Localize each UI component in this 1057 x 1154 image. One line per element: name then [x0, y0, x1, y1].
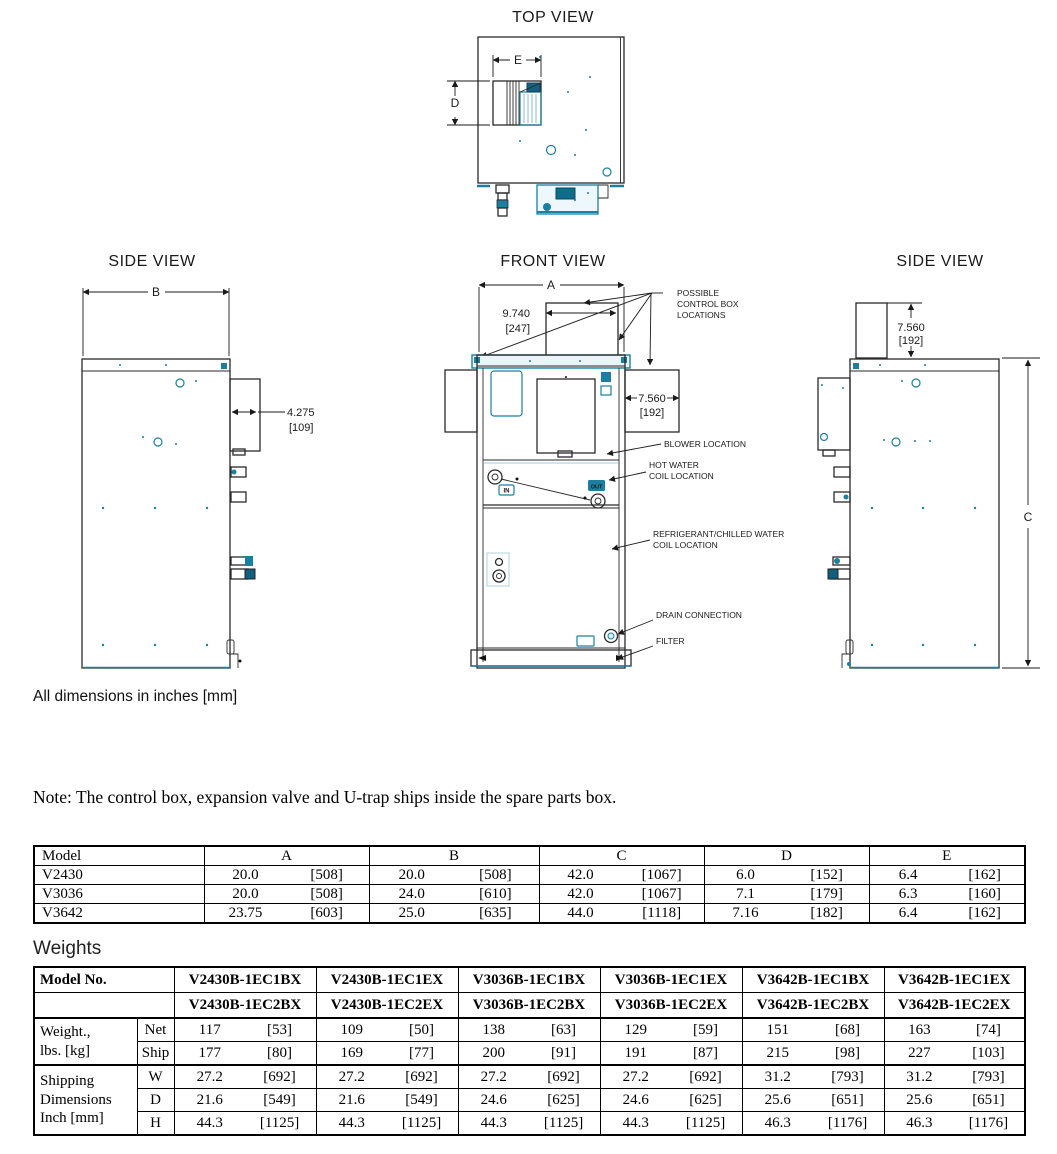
kg-value: [59]	[670, 1022, 741, 1039]
weights-row-h: H 44.3[1125] 44.3[1125] 44.3[1125] 44.3[…	[34, 1112, 1025, 1136]
kg-value: [87]	[670, 1045, 741, 1062]
top-view: TOP VIEW E	[447, 9, 624, 216]
col-header-model: Model	[34, 846, 204, 866]
dim-7560-right: 7.560 [192]	[887, 303, 925, 357]
inch-value: 6.4	[870, 867, 946, 884]
model-col-header: V2430B-1EC2BX	[174, 993, 316, 1019]
dim-cell: 31.2[793]	[742, 1065, 884, 1089]
lb-value: 163	[885, 1022, 953, 1039]
units-note: All dimensions in inches [mm]	[33, 688, 237, 706]
dim-cell: 23.75[603]	[204, 904, 369, 924]
mm-value: [1125]	[244, 1115, 315, 1132]
side-view-right-title: SIDE VIEW	[896, 253, 984, 270]
row-label: H	[137, 1112, 174, 1136]
inch-value: 27.2	[459, 1069, 528, 1086]
mm-value: [1067]	[621, 867, 703, 884]
kg-value: [103]	[954, 1045, 1024, 1062]
dim-cell: 21.6[549]	[316, 1089, 458, 1112]
lb-value: 200	[459, 1045, 528, 1062]
dim-cell: 25.6[651]	[884, 1089, 1025, 1112]
svg-text:REFRIGERANT/CHILLED WATER: REFRIGERANT/CHILLED WATER	[653, 529, 784, 539]
model-cell: V3036	[34, 885, 204, 904]
mm-value: [793]	[812, 1069, 883, 1086]
mm-value: [692]	[670, 1069, 741, 1086]
svg-text:A: A	[547, 278, 555, 292]
dim-cell: 7.16[182]	[704, 904, 869, 924]
lb-value: 215	[743, 1045, 812, 1062]
svg-text:B: B	[152, 285, 160, 299]
weight-cell: 227[103]	[884, 1042, 1025, 1066]
dim-cell: 46.3[1176]	[742, 1112, 884, 1136]
front-view: FRONT VIEW A 9.740 [247] POSSIBLE CONTRO…	[445, 253, 784, 668]
mm-value: [162]	[946, 905, 1023, 922]
mm-value: [635]	[453, 905, 538, 922]
top-view-title: TOP VIEW	[512, 9, 594, 26]
inch-value: 27.2	[601, 1069, 670, 1086]
weights-section-title: Weights	[33, 938, 101, 960]
svg-text:[192]: [192]	[640, 407, 664, 419]
weight-cell: 138[63]	[458, 1018, 600, 1042]
dim-cell: 6.4[162]	[869, 904, 1025, 924]
weight-cell: 151[68]	[742, 1018, 884, 1042]
mm-value: [1176]	[812, 1115, 883, 1132]
inch-value: 24.6	[601, 1092, 670, 1109]
dim-cell: 27.2[692]	[600, 1065, 742, 1089]
panel-dots-side-right	[871, 364, 976, 646]
inch-value: 21.6	[317, 1092, 386, 1109]
mm-value: [692]	[528, 1069, 599, 1086]
spec-sheet-page: { "views": { "top": {"title": "TOP VIEW"…	[0, 0, 1057, 1154]
lb-value: 177	[175, 1045, 244, 1062]
inch-value: 6.0	[705, 867, 785, 884]
model-no-header-blank	[34, 993, 174, 1019]
shipping-note: Note: The control box, expansion valve a…	[33, 787, 616, 808]
panel-dots-top	[519, 56, 591, 156]
engineering-drawing: .out{stroke:#2a2a2a;fill:none;stroke-wid…	[0, 0, 1057, 745]
dim-c: C	[1002, 358, 1040, 668]
svg-text:[247]: [247]	[506, 323, 530, 335]
svg-text:7.560: 7.560	[638, 393, 666, 405]
dimensions-table: Model A B C D E V2430 20.0[508] 20.0[508…	[33, 845, 1026, 924]
weight-cell: 177[80]	[174, 1042, 316, 1066]
weight-cell: 163[74]	[884, 1018, 1025, 1042]
dim-cell: 27.2[692]	[458, 1065, 600, 1089]
model-col-header: V3642B-1EC2EX	[884, 993, 1025, 1019]
model-col-header: V3642B-1EC1BX	[742, 967, 884, 993]
mm-value: [603]	[286, 905, 368, 922]
dim-cell: 20.0[508]	[204, 866, 369, 885]
row-label: Net	[137, 1018, 174, 1042]
lb-value: 191	[601, 1045, 670, 1062]
group-label-line: Dimensions	[40, 1091, 137, 1110]
inch-value: 42.0	[540, 886, 620, 903]
dim-a: A	[479, 278, 624, 352]
col-header-c: C	[539, 846, 704, 866]
model-col-header: V2430B-1EC2EX	[316, 993, 458, 1019]
svg-text:BLOWER LOCATION: BLOWER LOCATION	[664, 439, 746, 449]
kg-value: [91]	[528, 1045, 599, 1062]
model-col-header: V3036B-1EC1BX	[458, 967, 600, 993]
kg-value: [63]	[528, 1022, 599, 1039]
mm-value: [651]	[954, 1092, 1024, 1109]
model-col-header: V2430B-1EC1EX	[316, 967, 458, 993]
dim-cell: 24.0[610]	[369, 885, 539, 904]
inch-value: 44.3	[459, 1115, 528, 1132]
top-view-bottom-fittings	[477, 185, 624, 216]
model-col-header: V3036B-1EC2BX	[458, 993, 600, 1019]
side-view-right: SIDE VIEW 7.560 [192]	[818, 253, 1040, 668]
svg-text:C: C	[1024, 510, 1033, 524]
dim-row-v3036: V3036 20.0[508] 24.0[610] 42.0[1067] 7.1…	[34, 885, 1025, 904]
drain-connection	[605, 630, 618, 643]
kg-value: [74]	[954, 1022, 1024, 1039]
inch-value: 42.0	[540, 867, 620, 884]
dim-cell: 46.3[1176]	[884, 1112, 1025, 1136]
weights-row-ship: Ship 177[80] 169[77] 200[91] 191[87] 215…	[34, 1042, 1025, 1066]
col-header-d: D	[704, 846, 869, 866]
mm-value: [610]	[453, 886, 538, 903]
group-label-line: lbs. [kg]	[40, 1042, 137, 1061]
inch-value: 27.2	[175, 1069, 244, 1086]
weight-cell: 191[87]	[600, 1042, 742, 1066]
inch-value: 24.0	[370, 886, 453, 903]
dim-cell: 27.2[692]	[174, 1065, 316, 1089]
svg-text:D: D	[451, 96, 460, 110]
kg-value: [53]	[244, 1022, 315, 1039]
dim-9740: 9.740 [247]	[502, 308, 616, 335]
inch-value: 27.2	[317, 1069, 386, 1086]
model-col-header: V2430B-1EC1BX	[174, 967, 316, 993]
inch-value: 20.0	[370, 867, 453, 884]
mm-value: [508]	[286, 867, 368, 884]
svg-text:7.560: 7.560	[897, 322, 925, 334]
dim-row-v2430: V2430 20.0[508] 20.0[508] 42.0[1067] 6.0…	[34, 866, 1025, 885]
row-label: W	[137, 1065, 174, 1089]
dim-cell: 44.3[1125]	[458, 1112, 600, 1136]
pipe-stubs-left-view	[231, 467, 255, 579]
weights-header-row-2: V2430B-1EC2BX V2430B-1EC2EX V3036B-1EC2B…	[34, 993, 1025, 1019]
mm-value: [793]	[954, 1069, 1024, 1086]
inch-value: 25.6	[885, 1092, 953, 1109]
inch-value: 6.4	[870, 905, 946, 922]
dim-cell: 42.0[1067]	[539, 866, 704, 885]
inch-value: 7.1	[705, 886, 785, 903]
dim-cell: 21.6[549]	[174, 1089, 316, 1112]
weights-row-w: ShippingDimensionsInch [mm] W 27.2[692] …	[34, 1065, 1025, 1089]
kg-value: [77]	[386, 1045, 457, 1062]
dim-cell: 25.6[651]	[742, 1089, 884, 1112]
svg-text:FILTER: FILTER	[656, 636, 685, 646]
row-label: D	[137, 1089, 174, 1112]
weights-table: Model No. V2430B-1EC1BX V2430B-1EC1EX V3…	[33, 966, 1026, 1136]
dim-cell: 20.0[508]	[204, 885, 369, 904]
dim-cell: 7.1[179]	[704, 885, 869, 904]
col-header-e: E	[869, 846, 1025, 866]
dim-cell: 6.4[162]	[869, 866, 1025, 885]
mm-value: [508]	[453, 867, 538, 884]
svg-text:9.740: 9.740	[502, 308, 530, 320]
inch-value: 44.0	[540, 905, 620, 922]
panel-dots-side-left	[102, 364, 208, 646]
mm-value: [160]	[946, 886, 1023, 903]
dim-4275: 4.275 [109]	[232, 407, 315, 434]
model-col-header: V3642B-1EC1EX	[884, 967, 1025, 993]
lb-value: 227	[885, 1045, 953, 1062]
inch-value: 25.0	[370, 905, 453, 922]
inch-value: 23.75	[205, 905, 285, 922]
mm-value: [651]	[812, 1092, 883, 1109]
weight-cell: 215[98]	[742, 1042, 884, 1066]
lb-value: 169	[317, 1045, 386, 1062]
blower-assembly-top	[493, 81, 541, 125]
mm-value: [162]	[946, 867, 1023, 884]
model-no-header: Model No.	[34, 967, 174, 993]
svg-text:POSSIBLE: POSSIBLE	[677, 288, 719, 298]
model-col-header: V3642B-1EC2BX	[742, 993, 884, 1019]
weight-cell: 117[53]	[174, 1018, 316, 1042]
inch-value: 31.2	[885, 1069, 953, 1086]
model-cell: V3642	[34, 904, 204, 924]
front-callouts: BLOWER LOCATION HOT WATER COIL LOCATION …	[607, 439, 784, 659]
dim-e: E	[493, 53, 541, 77]
svg-text:LOCATIONS: LOCATIONS	[677, 310, 726, 320]
weight-group-label: Weight.,lbs. [kg]	[34, 1018, 137, 1065]
svg-text:DRAIN CONNECTION: DRAIN CONNECTION	[656, 610, 742, 620]
inch-value: 25.6	[743, 1092, 812, 1109]
dim-7560-front: 7.560 [192]	[625, 393, 679, 419]
mm-value: [1118]	[621, 905, 703, 922]
mm-value: [182]	[786, 905, 868, 922]
svg-text:CONTROL BOX: CONTROL BOX	[677, 299, 739, 309]
svg-text:[109]: [109]	[289, 422, 313, 434]
lb-value: 138	[459, 1022, 528, 1039]
mm-value: [1125]	[670, 1115, 741, 1132]
weight-cell: 129[59]	[600, 1018, 742, 1042]
mm-value: [692]	[386, 1069, 457, 1086]
shipping-group-label: ShippingDimensionsInch [mm]	[34, 1065, 137, 1135]
weights-row-d: D 21.6[549] 21.6[549] 24.6[625] 24.6[625…	[34, 1089, 1025, 1112]
dim-cell: 24.6[625]	[458, 1089, 600, 1112]
mm-value: [1067]	[621, 886, 703, 903]
svg-text:OUT: OUT	[591, 485, 603, 491]
dim-cell: 24.6[625]	[600, 1089, 742, 1112]
side-view-left: SIDE VIEW B 4.275 [109]	[82, 253, 315, 668]
kg-value: [80]	[244, 1045, 315, 1062]
model-col-header: V3036B-1EC2EX	[600, 993, 742, 1019]
inch-value: 20.0	[205, 886, 285, 903]
mm-value: [625]	[670, 1092, 741, 1109]
hot-water-ports: IN OUT	[488, 470, 605, 508]
dim-table-header-row: Model A B C D E	[34, 846, 1025, 866]
mm-value: [1125]	[528, 1115, 599, 1132]
inch-value: 46.3	[743, 1115, 812, 1132]
dim-cell: 31.2[793]	[884, 1065, 1025, 1089]
mm-value: [179]	[786, 886, 868, 903]
side-view-left-title: SIDE VIEW	[108, 253, 196, 270]
lb-value: 117	[175, 1022, 244, 1039]
svg-text:COIL LOCATION: COIL LOCATION	[649, 471, 714, 481]
dim-d: D	[447, 81, 490, 125]
inch-value: 44.3	[317, 1115, 386, 1132]
svg-text:E: E	[514, 53, 522, 67]
inch-value: 31.2	[743, 1069, 812, 1086]
mm-value: [508]	[286, 886, 368, 903]
weights-row-net: Weight.,lbs. [kg] Net 117[53] 109[50] 13…	[34, 1018, 1025, 1042]
group-label-line: Shipping	[40, 1072, 137, 1091]
inch-value: 7.16	[705, 905, 785, 922]
refrigerant-ports	[487, 553, 509, 586]
dim-cell: 44.3[1125]	[174, 1112, 316, 1136]
inch-value: 44.3	[601, 1115, 670, 1132]
dim-cell: 6.3[160]	[869, 885, 1025, 904]
group-label-line: Weight.,	[40, 1023, 137, 1042]
dim-cell: 27.2[692]	[316, 1065, 458, 1089]
inch-value: 21.6	[175, 1092, 244, 1109]
dim-b: B	[83, 285, 229, 356]
mm-value: [152]	[786, 867, 868, 884]
lb-value: 129	[601, 1022, 670, 1039]
dim-cell: 44.0[1118]	[539, 904, 704, 924]
lb-value: 109	[317, 1022, 386, 1039]
col-header-a: A	[204, 846, 369, 866]
inch-value: 6.3	[870, 886, 946, 903]
inch-value: 46.3	[885, 1115, 953, 1132]
svg-text:[192]: [192]	[899, 335, 923, 347]
dim-cell: 44.3[1125]	[316, 1112, 458, 1136]
group-label-line: Inch [mm]	[40, 1109, 137, 1128]
mm-value: [1176]	[954, 1115, 1024, 1132]
kg-value: [98]	[812, 1045, 883, 1062]
mm-value: [625]	[528, 1092, 599, 1109]
weights-header-row-1: Model No. V2430B-1EC1BX V2430B-1EC1EX V3…	[34, 967, 1025, 993]
dim-cell: 6.0[152]	[704, 866, 869, 885]
dim-cell: 42.0[1067]	[539, 885, 704, 904]
inch-value: 44.3	[175, 1115, 244, 1132]
mm-value: [692]	[244, 1069, 315, 1086]
svg-text:4.275: 4.275	[287, 407, 315, 419]
svg-text:IN: IN	[504, 489, 510, 495]
blower-front	[537, 376, 595, 457]
col-header-b: B	[369, 846, 539, 866]
inch-value: 20.0	[205, 867, 285, 884]
inch-value: 24.6	[459, 1092, 528, 1109]
weight-cell: 169[77]	[316, 1042, 458, 1066]
pipe-stubs-right-view	[828, 467, 850, 579]
mm-value: [1125]	[386, 1115, 457, 1132]
dim-cell: 44.3[1125]	[600, 1112, 742, 1136]
dim-cell: 25.0[635]	[369, 904, 539, 924]
front-view-title: FRONT VIEW	[500, 253, 606, 270]
mm-value: [549]	[386, 1092, 457, 1109]
svg-text:HOT WATER: HOT WATER	[649, 460, 699, 470]
kg-value: [68]	[812, 1022, 883, 1039]
weight-cell: 200[91]	[458, 1042, 600, 1066]
svg-text:COIL LOCATION: COIL LOCATION	[653, 540, 718, 550]
row-label: Ship	[137, 1042, 174, 1066]
weight-cell: 109[50]	[316, 1018, 458, 1042]
kg-value: [50]	[386, 1022, 457, 1039]
lb-value: 151	[743, 1022, 812, 1039]
dim-cell: 20.0[508]	[369, 866, 539, 885]
dim-row-v3642: V3642 23.75[603] 25.0[635] 44.0[1118] 7.…	[34, 904, 1025, 924]
model-cell: V2430	[34, 866, 204, 885]
mm-value: [549]	[244, 1092, 315, 1109]
model-col-header: V3036B-1EC1EX	[600, 967, 742, 993]
